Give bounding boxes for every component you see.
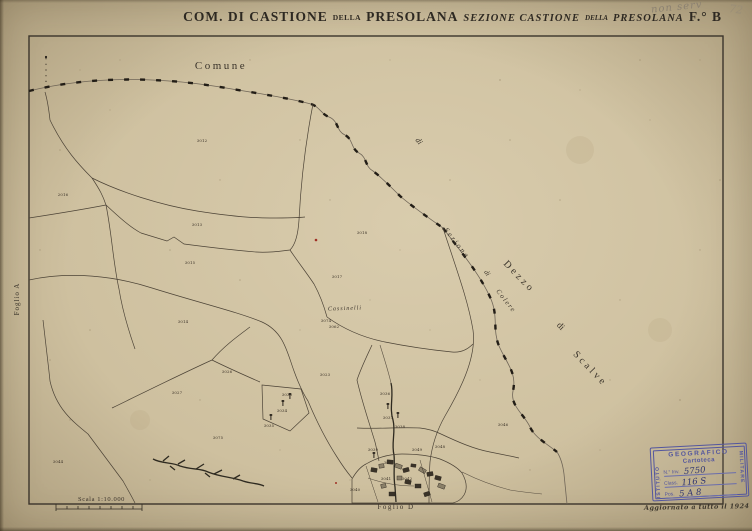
parcel-number: 3075 xyxy=(213,436,223,440)
stamp-class-label: Class. xyxy=(664,480,678,487)
parcel-boundaries xyxy=(29,92,542,503)
parcel-number: 3013 xyxy=(192,223,202,227)
parcel-number: 3017 xyxy=(332,275,342,279)
parcel-number: 3037 xyxy=(383,416,393,420)
parcel-number: 3036 xyxy=(380,392,390,396)
parcel-number: 3042 xyxy=(402,477,412,481)
title-presolana-2: PRESOLANA xyxy=(613,13,684,24)
title-della-1: DELLA xyxy=(333,13,361,22)
scale-bar xyxy=(56,504,142,511)
stamp-pos-value: 5 A 8 xyxy=(678,487,701,499)
parcel-number: 3048 xyxy=(435,445,445,449)
parcel-number: 3015 xyxy=(185,261,195,265)
parcel-number: 3014 xyxy=(178,320,188,324)
stream-lines xyxy=(153,345,396,502)
point-feature-icon xyxy=(373,454,374,458)
parcel-number: 3041 xyxy=(381,477,391,481)
parcel-number: 3062 xyxy=(329,325,339,329)
stamp-inner-border: GEOGRAFICO ISTITUTO MILITARE Cartoteca N… xyxy=(652,445,746,499)
map-label-comune: Comune xyxy=(195,60,247,72)
scanned-cadastral-map-sheet: ComunediSezionediColereDezzodiScalveCass… xyxy=(0,0,752,531)
parcel-number: 3034 xyxy=(277,409,287,413)
parcel-number: 2016 xyxy=(58,193,68,197)
point-feature-icon xyxy=(289,395,290,399)
stamp-istituto-text: ISTITUTO xyxy=(654,455,662,498)
scale-label: Scala 1:10.000 xyxy=(78,496,125,503)
pencil-page-number: 72 xyxy=(728,2,744,17)
parcel-number: 3012 xyxy=(197,139,207,143)
parcel-number: 3044 xyxy=(53,460,63,464)
paper-stains xyxy=(130,136,672,430)
title-sheet-letter: F.° B xyxy=(689,9,722,25)
parcel-number: 3040 xyxy=(350,488,360,492)
title-presolana-1: PRESOLANA xyxy=(366,9,458,25)
parcel-number: 3027 xyxy=(172,391,182,395)
parcel-number: 3049 xyxy=(412,448,422,452)
stamp-militare-text: MILITARE xyxy=(737,450,745,493)
stamp-class-value: 116 S xyxy=(682,476,708,488)
point-feature-icon xyxy=(387,405,388,409)
title-commune: COM. DI CASTIONE xyxy=(183,9,328,25)
point-feature-icon xyxy=(282,402,283,406)
title-sezione: SEZIONE CASTIONE xyxy=(463,13,580,24)
parcel-number: 3045 xyxy=(384,461,394,465)
title-della-2: DELLA xyxy=(585,14,608,22)
point-feature-icon xyxy=(270,416,271,420)
stamp-pos-label: Pos. xyxy=(664,491,674,498)
stamp-inv-label: N.° Inv. xyxy=(663,469,679,476)
map-title: COM. DI CASTIONE DELLA PRESOLANA SEZIONE… xyxy=(183,9,722,25)
point-feature-icon xyxy=(397,414,398,418)
parcel-number: 3038 xyxy=(395,425,405,429)
parcel-number: 3046 xyxy=(498,423,508,427)
map-label-cassinelli: Cassinelli xyxy=(328,305,362,312)
parcel-number: 3023 xyxy=(320,373,330,377)
parcel-number: 3018 xyxy=(357,231,367,235)
parcel-number: 3026 xyxy=(222,370,232,374)
map-label-foglio-a: Foglio A xyxy=(13,283,21,316)
comune-boundary-line xyxy=(29,56,567,504)
map-neatline-border xyxy=(29,36,723,504)
stamp-fields: Cartoteca N.° Inv. 5750 Class. 116 S Pos… xyxy=(663,456,737,499)
parcel-number: 3074 xyxy=(321,319,331,323)
parcel-number: 3035 xyxy=(264,424,274,428)
igm-archive-stamp: GEOGRAFICO ISTITUTO MILITARE Cartoteca N… xyxy=(650,442,750,501)
map-label-foglio-d: Foglio D xyxy=(377,503,414,511)
stamp-inv-value: 5750 xyxy=(683,465,705,477)
